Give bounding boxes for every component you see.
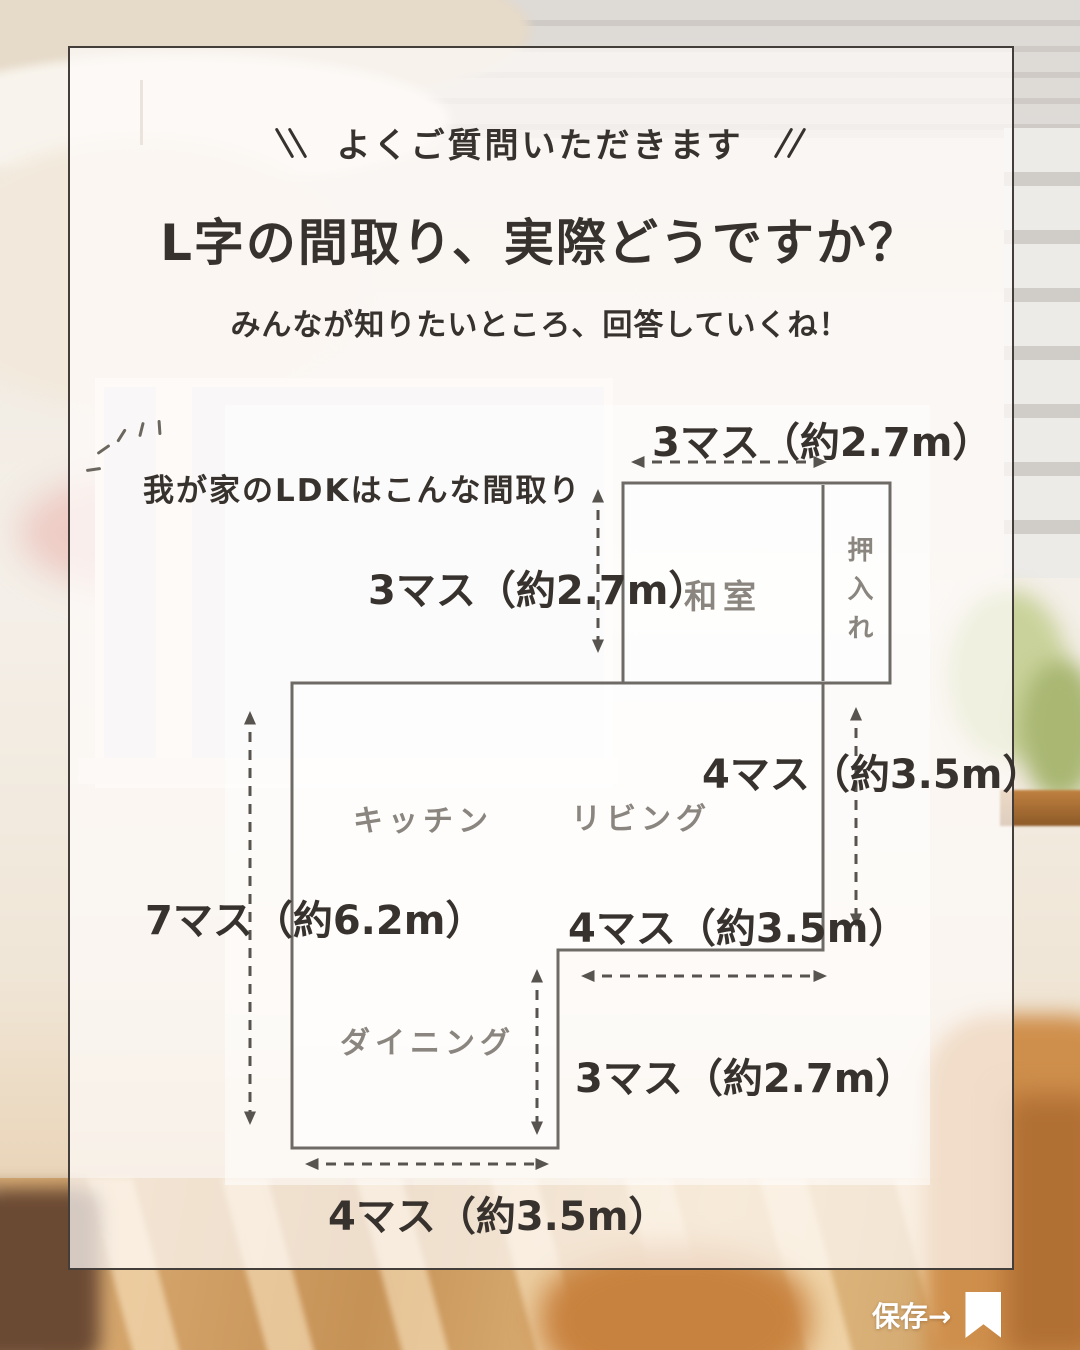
dimension-total-height: 7マス（約6.2m） [145,888,485,946]
post-canvas: よくご質問いただきます L字の間取り、実際どうですか？ みんなが知りたいところ、… [0,0,1080,1350]
page-subtitle: みんなが知りたいところ、回答していくね！ [0,300,1080,344]
slash-left-icon [283,126,299,160]
dimension-washitsu-height: 3マス（約2.7m） [368,558,708,616]
room-label-living: リビング [571,794,711,838]
save-button[interactable]: 保存→ [872,1292,1001,1338]
save-label: 保存→ [872,1295,951,1335]
question-badge: よくご質問いただきます [0,118,1080,167]
room-label-kitchen: キッチン [353,796,493,840]
dimension-dining-width: 4マス（約3.5m） [328,1184,668,1242]
room-label-oshiire: 押入れ [840,536,877,653]
bookmark-icon [965,1292,1001,1338]
photo-window-blinds-right [1004,128,1080,578]
room-label-dining: ダイニング [340,1018,515,1062]
badge-label: よくご質問いただきます [337,118,744,167]
page-title: L字の間取り、実際どうですか？ [0,203,1080,275]
dimension-living-height: 4マス（約3.5m） [702,742,1042,800]
slash-right-icon [782,126,798,160]
dimension-dining-height: 3マス（約2.7m） [575,1046,915,1104]
photo-chair [1005,1095,1080,1350]
dimension-top-width: 3マス（約2.7m） [652,410,992,468]
floorplan-caption: 我が家のLDKはこんな間取り [143,465,582,510]
dimension-living-width: 4マス（約3.5m） [568,896,908,954]
